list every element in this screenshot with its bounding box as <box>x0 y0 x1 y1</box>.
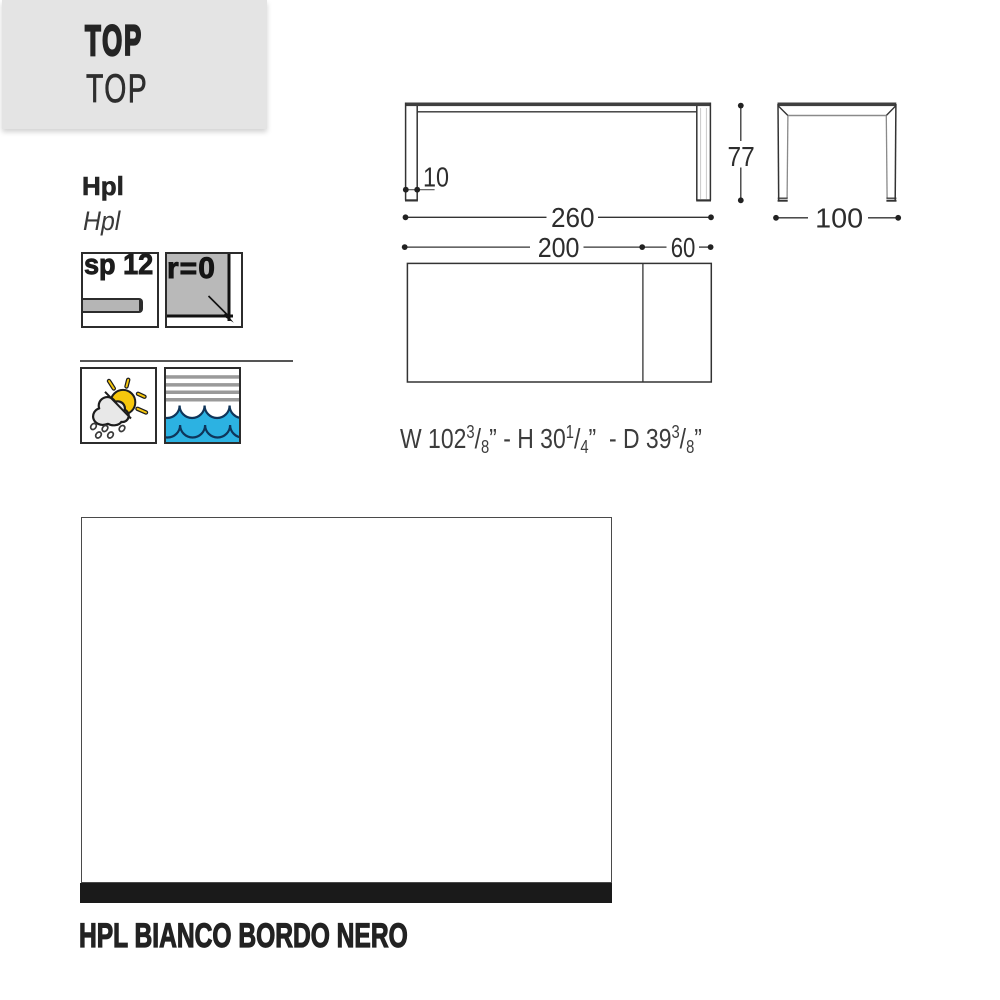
svg-text:10: 10 <box>423 162 449 193</box>
svg-text:200: 200 <box>538 232 580 263</box>
svg-text:60: 60 <box>671 232 696 263</box>
svg-text:100: 100 <box>815 203 863 234</box>
svg-text:260: 260 <box>551 202 595 233</box>
svg-text:77: 77 <box>728 141 755 172</box>
